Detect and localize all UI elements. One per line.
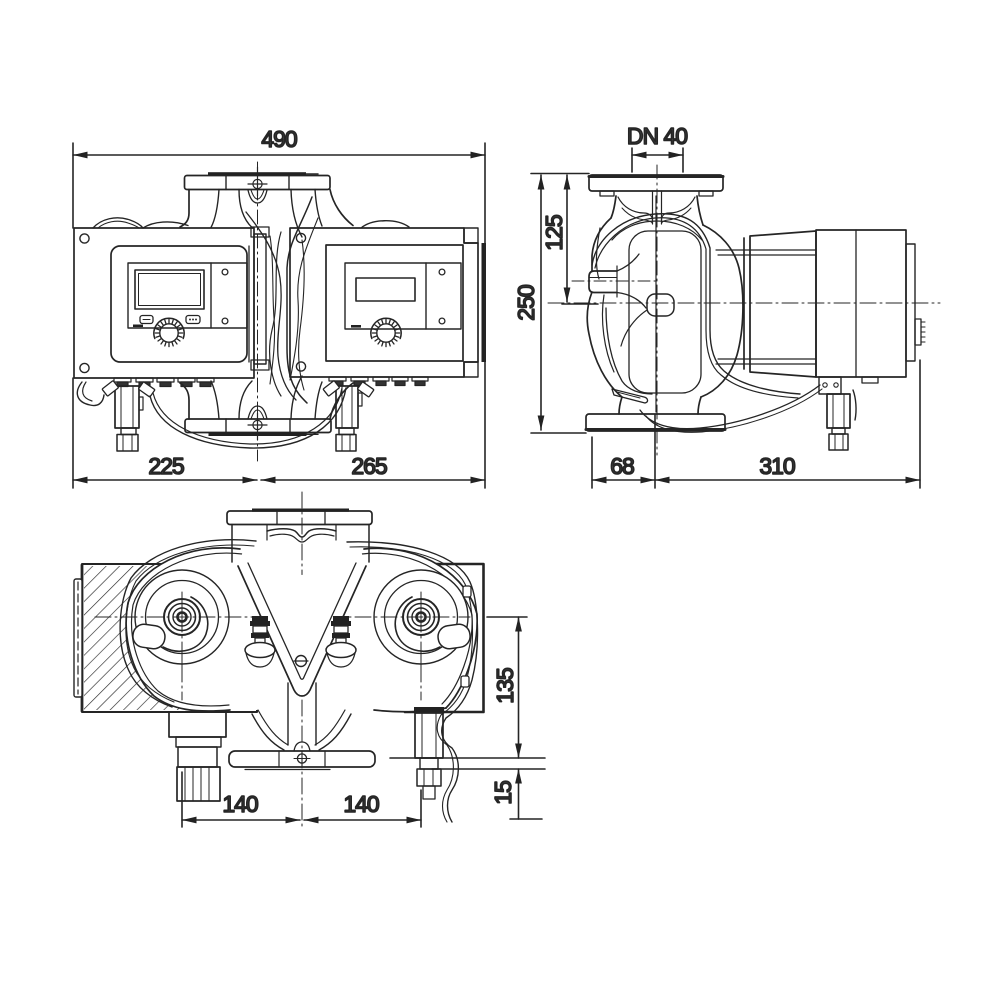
svg-text:310: 310 [759,453,795,479]
svg-text:125: 125 [541,215,567,251]
svg-text:225: 225 [148,453,184,479]
svg-text:DN 40: DN 40 [627,123,687,149]
svg-text:140: 140 [222,791,258,817]
svg-text:250: 250 [513,285,539,321]
svg-text:15: 15 [490,781,516,805]
svg-text:265: 265 [351,453,387,479]
svg-text:490: 490 [261,126,297,152]
svg-text:135: 135 [492,668,518,704]
svg-text:140: 140 [343,791,379,817]
svg-text:68: 68 [610,453,634,479]
